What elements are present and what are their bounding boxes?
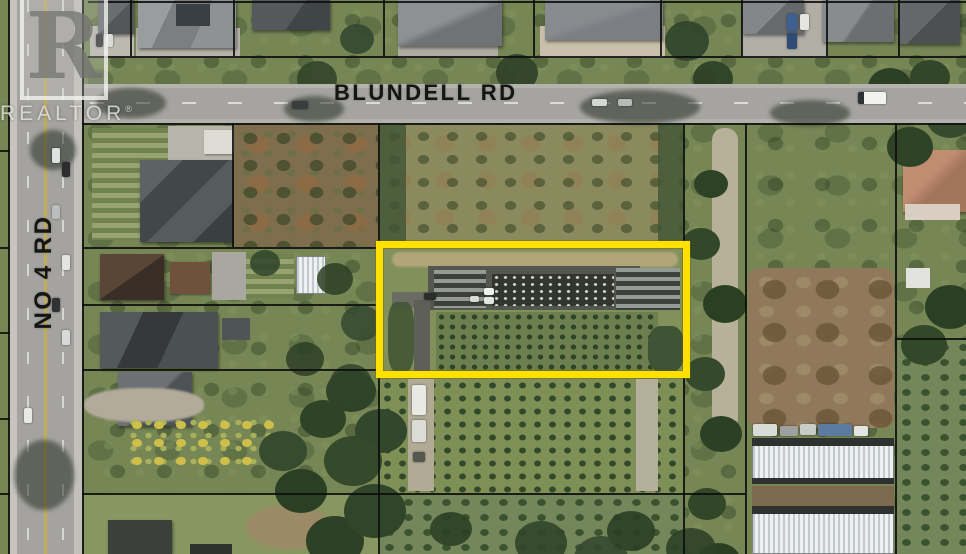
parcel-boundary-line <box>82 304 378 306</box>
tree-canopy <box>250 250 280 276</box>
house-roof <box>903 150 966 212</box>
house-roof <box>252 0 330 30</box>
shed-roof <box>170 262 210 294</box>
parcel-boundary-line <box>895 338 966 340</box>
parcel-boundary-line <box>232 123 234 247</box>
highlighted-parcel-outline <box>376 241 690 378</box>
solar-panels <box>176 4 210 26</box>
car <box>787 14 797 31</box>
car <box>787 33 797 49</box>
house-roof <box>140 160 236 242</box>
parcel-boundary-line <box>898 0 900 56</box>
car <box>800 14 809 30</box>
driveway <box>212 252 246 300</box>
parcel-boundary-line <box>533 0 535 56</box>
scrub-field <box>380 125 683 245</box>
parcel-boundary-line <box>826 0 828 56</box>
car <box>24 408 32 423</box>
parked-car <box>592 99 607 106</box>
parcel-boundary-line <box>0 418 10 420</box>
vehicle <box>854 426 868 436</box>
parcel-boundary-line <box>0 150 10 152</box>
parcel-boundary-line <box>660 0 662 56</box>
tree-canopy <box>300 400 346 438</box>
parcel-boundary-line <box>233 0 235 56</box>
parcel-boundary-line <box>88 56 966 58</box>
car <box>52 148 60 163</box>
realtor-logo: R <box>20 0 108 100</box>
truck <box>858 92 886 104</box>
tree-shadow <box>580 90 700 124</box>
shed-roof <box>190 544 232 554</box>
tree-shadow <box>14 440 74 510</box>
tree-canopy <box>694 170 728 198</box>
gravel-lane <box>636 379 658 491</box>
shed-roof <box>222 318 250 340</box>
parcel-boundary-line <box>0 493 10 495</box>
parcel-boundary-line <box>741 0 743 56</box>
orchard-field <box>380 495 683 554</box>
parcel-boundary-line <box>383 0 385 56</box>
dirt-patch <box>752 486 894 506</box>
road-label-blundell: BLUNDELL RD <box>334 80 518 106</box>
parcel-boundary-line <box>130 0 132 56</box>
greenhouse-shadow <box>752 506 894 514</box>
parcel-boundary-line <box>745 123 747 554</box>
shed-roof <box>906 268 930 288</box>
small-greenhouse <box>296 256 326 294</box>
parked-car <box>618 99 632 106</box>
yard <box>905 204 960 220</box>
aerial-photo: BLUNDELL RD NO 4 RD R REALTOR® <box>0 0 966 554</box>
car <box>62 330 70 345</box>
tree-canopy <box>430 512 472 546</box>
parcel-boundary-line <box>82 369 378 371</box>
dirt-patch <box>246 505 332 549</box>
car <box>62 162 70 177</box>
parcel-boundary-line <box>82 123 966 125</box>
vehicle <box>780 426 798 436</box>
parcel-boundary-line <box>82 493 745 495</box>
flowering-shrubs <box>126 416 276 468</box>
house-roof <box>398 0 502 46</box>
house-roof <box>545 0 663 40</box>
parcel-boundary-line <box>0 247 10 249</box>
parcel-boundary-line <box>88 1 966 3</box>
tree-canopy <box>340 24 374 54</box>
realtor-logo-letter: R <box>26 0 102 100</box>
orchard-field <box>897 340 966 554</box>
house-roof <box>100 254 164 300</box>
house-roof <box>100 312 218 368</box>
road-label-no4: NO 4 RD <box>30 214 58 330</box>
parcel-boundary-line <box>82 247 378 249</box>
car <box>62 255 70 270</box>
parcel-boundary-line <box>0 332 10 334</box>
dirt-field <box>748 268 894 428</box>
realtor-watermark: R REALTOR® <box>0 0 130 140</box>
greenhouse-shadow <box>752 438 894 446</box>
shed-roof <box>204 130 234 154</box>
vehicle <box>800 424 816 435</box>
car <box>292 101 308 109</box>
trailer <box>818 424 852 436</box>
brush-field <box>234 125 378 247</box>
trailer <box>413 452 425 462</box>
vehicle <box>753 424 777 436</box>
tree-canopy <box>658 125 683 245</box>
trailer <box>412 385 426 415</box>
tree-canopy <box>380 125 406 245</box>
realtor-brand-text: REALTOR® <box>0 102 132 126</box>
greenhouse-shadow <box>752 478 894 484</box>
house-roof <box>898 0 960 44</box>
house-roof <box>108 520 172 554</box>
house-roof <box>822 0 894 42</box>
trailer <box>412 420 426 442</box>
